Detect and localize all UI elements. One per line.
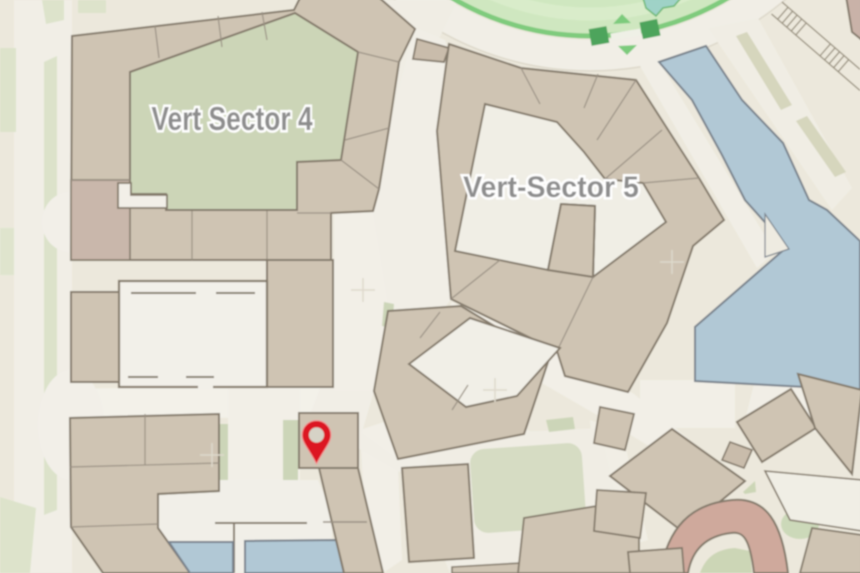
svg-text:Vert-Sector 5: Vert-Sector 5 <box>463 171 639 204</box>
svg-text:Vert Sector 4: Vert Sector 4 <box>151 101 313 137</box>
